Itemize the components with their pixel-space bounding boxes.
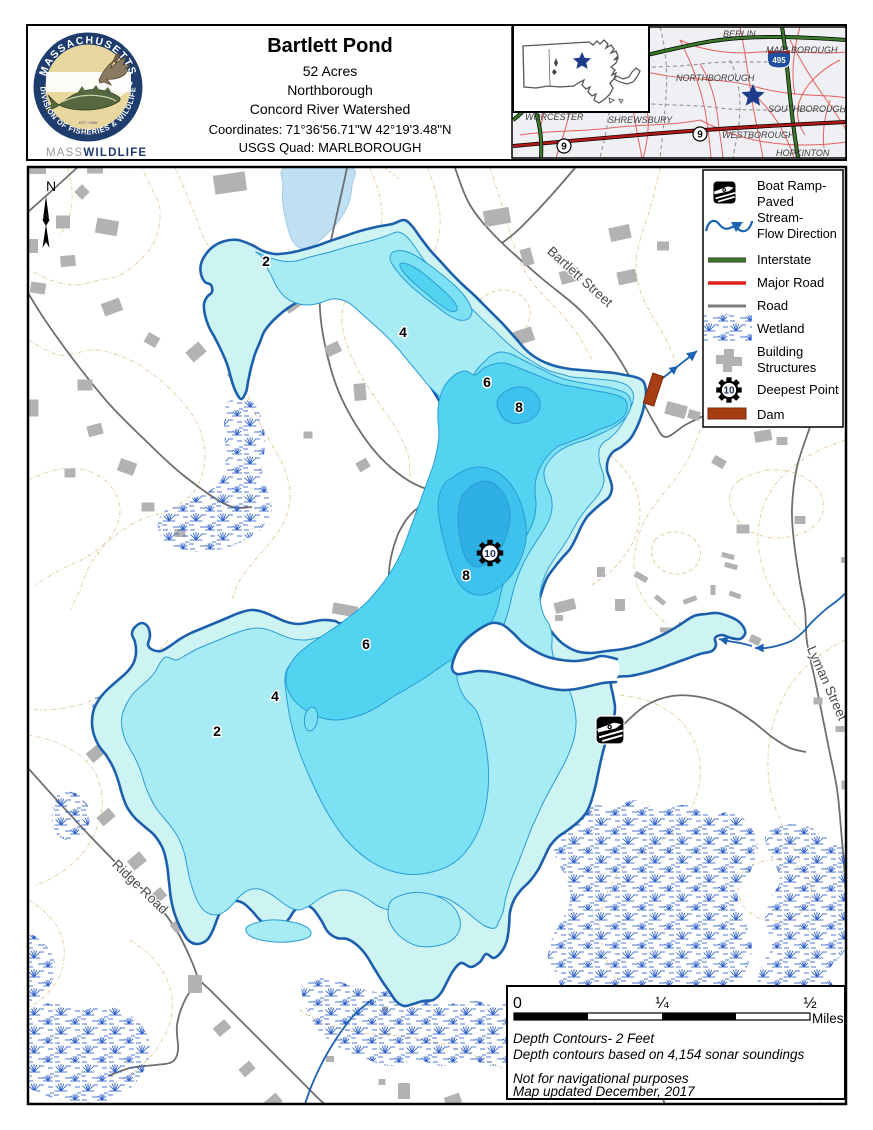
svg-text:2: 2 <box>262 253 270 269</box>
svg-text:Miles: Miles <box>812 1011 844 1026</box>
svg-text:Northborough: Northborough <box>287 82 373 98</box>
svg-text:495: 495 <box>772 56 786 65</box>
svg-text:Concord River Watershed: Concord River Watershed <box>250 101 411 117</box>
svg-text:6: 6 <box>362 636 370 652</box>
svg-text:9: 9 <box>697 130 703 141</box>
svg-text:Boat Ramp-: Boat Ramp- <box>757 178 826 193</box>
svg-text:Depth Contours- 2 Feet: Depth Contours- 2 Feet <box>513 1031 655 1046</box>
svg-text:2: 2 <box>213 723 221 739</box>
svg-text:Bartlett Pond: Bartlett Pond <box>267 35 393 57</box>
svg-text:SHREWSBURY: SHREWSBURY <box>608 115 673 125</box>
svg-text:BERLIN: BERLIN <box>723 29 756 39</box>
svg-text:Stream-: Stream- <box>757 210 803 225</box>
svg-text:NORTHBOROUGH: NORTHBOROUGH <box>676 73 755 83</box>
svg-text:8: 8 <box>462 567 470 583</box>
svg-text:Major Road: Major Road <box>757 275 824 290</box>
svg-text:4: 4 <box>271 688 279 704</box>
svg-text:Wetland: Wetland <box>757 321 804 336</box>
svg-text:9: 9 <box>561 142 567 153</box>
svg-text:½: ½ <box>803 995 816 1012</box>
svg-text:HOPKINTON: HOPKINTON <box>776 148 830 158</box>
svg-text:Structures: Structures <box>757 360 817 375</box>
svg-text:10: 10 <box>723 386 735 397</box>
svg-text:0: 0 <box>513 995 522 1012</box>
svg-text:Dam: Dam <box>757 407 784 422</box>
svg-text:Map updated December, 2017: Map updated December, 2017 <box>513 1084 695 1099</box>
svg-text:¼: ¼ <box>655 995 669 1012</box>
svg-text:WESTBOROUGH: WESTBOROUGH <box>722 130 795 140</box>
svg-text:Building: Building <box>757 344 803 359</box>
svg-text:4: 4 <box>399 324 407 340</box>
svg-text:Paved: Paved <box>757 194 794 209</box>
svg-text:N: N <box>46 178 56 194</box>
svg-text:MASSWILDLIFE: MASSWILDLIFE <box>46 147 147 159</box>
svg-text:Flow Direction: Flow Direction <box>757 227 837 241</box>
svg-text:WORCESTER: WORCESTER <box>525 112 584 122</box>
svg-text:SOUTHBOROUGH: SOUTHBOROUGH <box>768 104 847 114</box>
svg-text:Road: Road <box>757 298 788 313</box>
svg-text:EST. 1866: EST. 1866 <box>79 120 98 125</box>
svg-text:6: 6 <box>483 374 491 390</box>
svg-text:Interstate: Interstate <box>757 252 811 267</box>
svg-text:10: 10 <box>484 548 496 560</box>
svg-text:8: 8 <box>515 399 523 415</box>
svg-text:USGS Quad: MARLBOROUGH: USGS Quad: MARLBOROUGH <box>239 140 422 155</box>
svg-text:Coordinates: 71°36'56.71"W 42°: Coordinates: 71°36'56.71"W 42°19'3.48"N <box>209 122 452 137</box>
svg-text:52 Acres: 52 Acres <box>303 63 357 79</box>
svg-text:Depth contours based on 4,154: Depth contours based on 4,154 sonar soun… <box>513 1047 804 1062</box>
svg-text:Deepest Point: Deepest Point <box>757 382 839 397</box>
svg-text:MARLBOROUGH: MARLBOROUGH <box>766 45 838 55</box>
